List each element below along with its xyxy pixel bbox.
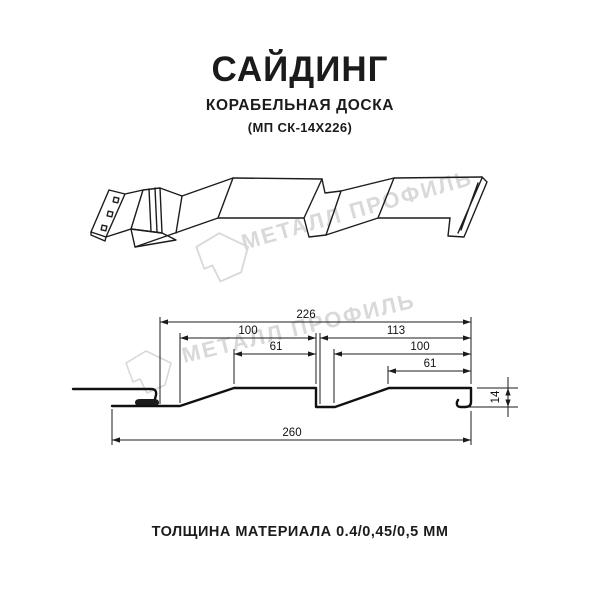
dim-label-overall: 226 bbox=[296, 309, 315, 321]
dim-label-pitch-right: 100 bbox=[410, 341, 429, 353]
dim-label-panel-right: 113 bbox=[387, 325, 405, 337]
watermark-text: МЕТАЛЛ ПРОФИЛЬ bbox=[179, 288, 418, 368]
product-drawing-page: САЙДИНГ КОРАБЕЛЬНАЯ ДОСКА (МП СК-14Х226)… bbox=[0, 0, 600, 600]
material-thickness-note: ТОЛЩИНА МАТЕРИАЛА 0.4/0,45/0,5 ММ bbox=[0, 524, 600, 540]
lock-hem bbox=[131, 229, 176, 247]
dim-label-total: 260 bbox=[282, 427, 301, 439]
technical-drawing: МЕТАЛЛ ПРОФИЛЬ МЕТАЛЛ ПРОФИЛЬ bbox=[0, 0, 600, 600]
gem-logo-icon bbox=[126, 351, 171, 393]
dim-label-crest-right: 61 bbox=[424, 358, 437, 370]
dim-label-pitch-left: 100 bbox=[238, 325, 257, 337]
watermark-upper: МЕТАЛЛ ПРОФИЛЬ bbox=[196, 165, 475, 282]
dim-label-crest-left: 61 bbox=[270, 341, 283, 353]
dim-label-height: 14 bbox=[490, 390, 502, 403]
profile-outline bbox=[112, 388, 471, 407]
adjacent-panel-line bbox=[73, 389, 156, 399]
